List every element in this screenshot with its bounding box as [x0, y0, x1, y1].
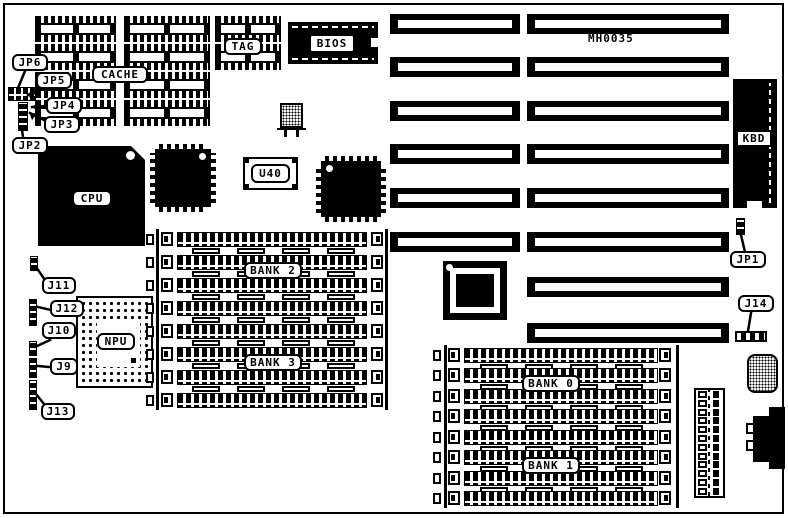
simm-latch-icon [371, 347, 383, 361]
u40-label: U40 [251, 164, 290, 183]
component-outline [192, 386, 220, 392]
simm-latch-icon [161, 278, 173, 292]
dip-chip [124, 16, 210, 42]
simm-latch-icon [448, 409, 460, 423]
component-outline [327, 248, 355, 254]
power-pin [713, 453, 719, 460]
simm-socket-rail [444, 345, 447, 508]
isa-slot-short-segment [390, 14, 520, 34]
power-pin-outline [698, 470, 707, 477]
capacitor-outline [146, 372, 154, 383]
simm-module [464, 409, 658, 424]
dip-chip [35, 16, 116, 42]
simm-latch-icon [161, 232, 173, 246]
power-pin [713, 488, 719, 495]
crystal-base [277, 128, 306, 130]
simm-module [177, 370, 367, 385]
jp1-callout: JP1 [730, 251, 766, 268]
power-pin-outline [698, 400, 707, 407]
bios-label: BIOS [310, 35, 354, 52]
isa-slot-long-segment [527, 277, 729, 297]
jp4-callout: JP4 [46, 97, 82, 114]
simm-latch-icon [659, 409, 671, 423]
simm-module [177, 301, 367, 316]
isa-slot-long-segment [527, 232, 729, 252]
power-pin [713, 400, 719, 407]
j11-header [30, 256, 38, 271]
power-pin-outline [698, 488, 707, 495]
capacitor-outline [146, 257, 154, 268]
edge-connector [769, 407, 785, 469]
jp5-callout: JP5 [36, 72, 72, 89]
qfp-pin1-dot [199, 153, 206, 160]
capacitor-outline [146, 326, 154, 337]
isa-slot-short-segment [390, 144, 520, 164]
power-pin [713, 461, 719, 468]
capacitor-outline [146, 349, 154, 360]
j10-callout: J10 [42, 322, 76, 339]
component-outline [192, 271, 220, 277]
cache-label: CACHE [92, 66, 148, 83]
cpu-pin1-dot [126, 151, 135, 160]
component-outline [192, 294, 220, 300]
isa-slot-long-segment [527, 188, 729, 208]
simm-latch-icon [161, 301, 173, 315]
jp3-callout: JP3 [44, 116, 80, 133]
j9-header [29, 358, 37, 378]
power-pin-outline [698, 391, 707, 398]
component-outline [282, 248, 310, 254]
simm-latch-icon [448, 430, 460, 444]
simm-latch-icon [371, 232, 383, 246]
simm-latch-icon [161, 347, 173, 361]
motherboard-diagram: MH0035 BIOS U40 CPU NPU [0, 0, 788, 518]
power-pin-outline [698, 461, 707, 468]
bios-window-line [292, 26, 374, 28]
simm-latch-icon [371, 393, 383, 407]
simm-socket-rail [676, 345, 679, 508]
component-outline [192, 317, 220, 323]
power-pin-outline [698, 426, 707, 433]
capacitor-outline [433, 350, 441, 361]
isa-slot-short-segment [390, 188, 520, 208]
simm-latch-icon [448, 389, 460, 403]
simm-latch-icon [371, 370, 383, 384]
power-pin-outline [698, 417, 707, 424]
j12-callout: J12 [50, 300, 84, 317]
simm-module [177, 232, 367, 247]
qfp-pin1-dot [326, 165, 333, 172]
component-outline [747, 354, 778, 393]
component-outline [282, 386, 310, 392]
simm-latch-icon [659, 450, 671, 464]
simm-socket-rail [156, 229, 159, 410]
isa-slot-long-segment [527, 57, 729, 77]
capacitor-outline [146, 280, 154, 291]
capacitor-outline [433, 493, 441, 504]
isa-slot-long-segment [527, 101, 729, 121]
kbd-notch [747, 201, 762, 208]
j12-header [29, 299, 37, 326]
j9-callout: J9 [50, 358, 78, 375]
simm-module [464, 430, 658, 445]
crystal-leg [296, 130, 299, 137]
bank0-label: BANK 0 [522, 375, 580, 392]
simm-latch-icon [448, 368, 460, 382]
bios-notch [371, 38, 378, 47]
component-outline [237, 386, 265, 392]
bank1-label: BANK 1 [522, 457, 580, 474]
component-outline [282, 294, 310, 300]
component-outline [327, 363, 355, 369]
j10-header [29, 341, 37, 356]
power-pin [713, 479, 719, 486]
simm-latch-icon [371, 324, 383, 338]
simm-latch-icon [371, 255, 383, 269]
power-pin-outline [698, 444, 707, 451]
j13-callout: J13 [41, 403, 75, 420]
plcc-socket [443, 261, 507, 320]
j11-callout: J11 [42, 277, 76, 294]
isa-slot-short-segment [390, 232, 520, 252]
power-pin-outline [698, 479, 707, 486]
isa-slot-long-segment [527, 323, 729, 343]
j14-header [735, 331, 767, 342]
simm-module [464, 348, 658, 363]
simm-module [464, 491, 658, 506]
jumper-block [8, 87, 36, 101]
simm-latch-icon [659, 430, 671, 444]
simm-socket-rail [385, 229, 388, 410]
component-outline [237, 340, 265, 346]
power-connector-divider [708, 390, 710, 496]
simm-latch-icon [161, 255, 173, 269]
isa-slot-short-segment [390, 57, 520, 77]
simm-latch-icon [659, 368, 671, 382]
capacitor-outline [433, 411, 441, 422]
power-pin [713, 409, 719, 416]
simm-latch-icon [161, 324, 173, 338]
simm-latch-icon [659, 471, 671, 485]
power-pin [713, 470, 719, 477]
simm-latch-icon [448, 491, 460, 505]
power-pin [713, 444, 719, 451]
capacitor-outline [146, 234, 154, 245]
power-pin [713, 391, 719, 398]
u40-corner [292, 184, 296, 188]
simm-latch-icon [659, 348, 671, 362]
u40-corner [292, 159, 296, 163]
bank3-label: BANK 3 [244, 354, 302, 371]
component-outline [192, 363, 220, 369]
jp6-callout: JP6 [12, 54, 48, 71]
u40-component: U40 [243, 157, 298, 190]
isa-slot-long-segment [527, 144, 729, 164]
component-outline [192, 340, 220, 346]
component-outline [237, 248, 265, 254]
power-pin-outline [698, 453, 707, 460]
capacitor-outline [146, 395, 154, 406]
u40-corner [245, 159, 249, 163]
component-outline [327, 271, 355, 277]
capacitor-outline [433, 473, 441, 484]
plcc-pin1-dot [446, 264, 453, 271]
jp2-callout: JP2 [12, 137, 48, 154]
kbd-label: KBD [736, 130, 772, 147]
simm-latch-icon [371, 278, 383, 292]
crystal-leg [284, 130, 287, 137]
component-outline [327, 386, 355, 392]
bios-window-line [292, 58, 374, 60]
simm-latch-icon [448, 348, 460, 362]
edge-connector-tab [746, 423, 755, 434]
simm-latch-icon [161, 393, 173, 407]
dip-chip [124, 100, 210, 126]
edge-connector-tab [746, 440, 755, 451]
component-outline [282, 340, 310, 346]
capacitor-outline [433, 370, 441, 381]
capacitor-outline [433, 432, 441, 443]
jp1-header [736, 218, 745, 235]
capacitor-outline [146, 303, 154, 314]
component-outline [327, 317, 355, 323]
cpu-label: CPU [72, 190, 112, 207]
simm-module [177, 278, 367, 293]
tag-label: TAG [224, 38, 262, 55]
npu-label: NPU [97, 333, 135, 350]
u40-corner [245, 184, 249, 188]
power-pin-outline [698, 435, 707, 442]
isa-slot-short-segment [390, 101, 520, 121]
power-pin [713, 435, 719, 442]
simm-latch-icon [659, 389, 671, 403]
capacitor-outline [433, 391, 441, 402]
j14-callout: J14 [738, 295, 774, 312]
simm-latch-icon [448, 450, 460, 464]
npu-pin1-dot [131, 358, 136, 363]
simm-latch-icon [371, 301, 383, 315]
jumper-header [18, 102, 28, 131]
bank2-label: BANK 2 [244, 262, 302, 279]
simm-latch-icon [448, 471, 460, 485]
simm-latch-icon [659, 491, 671, 505]
power-pin [713, 417, 719, 424]
component-outline [327, 340, 355, 346]
component-outline [237, 317, 265, 323]
board-part-number: MH0035 [588, 32, 634, 45]
edge-connector [753, 416, 771, 462]
plcc-die [456, 274, 494, 307]
power-pin-outline [698, 409, 707, 416]
simm-module [177, 393, 367, 408]
j13-header [29, 380, 37, 410]
component-outline [237, 294, 265, 300]
isa-slot-long-segment [527, 14, 729, 34]
qfp-chip [316, 156, 386, 222]
simm-module [177, 324, 367, 339]
power-pin [713, 426, 719, 433]
crystal-oscillator [280, 103, 303, 128]
qfp-chip [150, 144, 216, 212]
component-outline [192, 248, 220, 254]
component-outline [327, 294, 355, 300]
simm-latch-icon [161, 370, 173, 384]
capacitor-outline [433, 452, 441, 463]
component-outline [282, 317, 310, 323]
